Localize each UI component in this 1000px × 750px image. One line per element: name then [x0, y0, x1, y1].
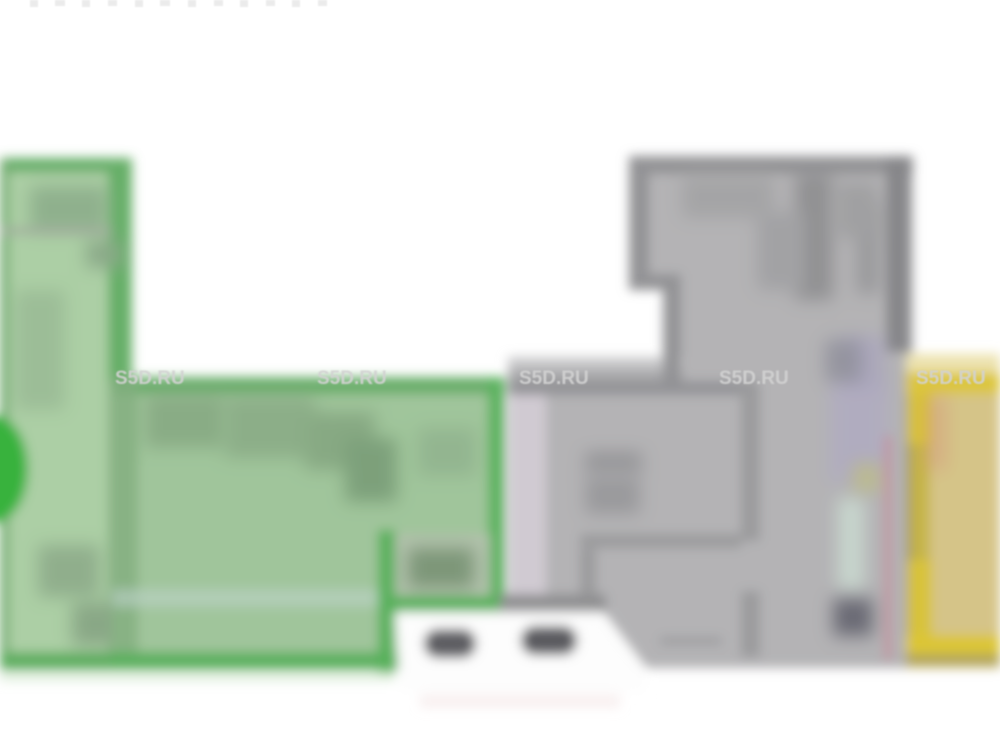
svg-text:S5D.RU: S5D.RU [916, 368, 986, 389]
svg-text:S5D.RU: S5D.RU [719, 368, 789, 389]
svg-text:S5D.RU: S5D.RU [115, 368, 185, 389]
svg-text:S5D.RU: S5D.RU [317, 368, 387, 389]
svg-text:S5D.RU: S5D.RU [519, 368, 589, 389]
